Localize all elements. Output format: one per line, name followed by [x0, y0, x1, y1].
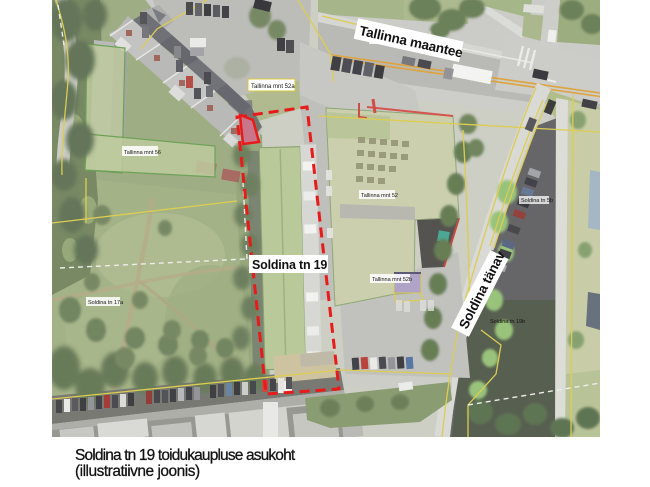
svg-text:Soldina tn 19: Soldina tn 19 [252, 258, 327, 272]
svg-text:Soldina tn 5b: Soldina tn 5b [521, 198, 553, 204]
svg-text:Tallinna mnt 52a: Tallinna mnt 52a [251, 84, 295, 90]
svg-text:Tallinna mnt 56: Tallinna mnt 56 [124, 150, 161, 156]
svg-text:Tallinna mnt 52b: Tallinna mnt 52b [372, 277, 412, 283]
svg-text:Tallinna mnt 52: Tallinna mnt 52 [361, 193, 398, 199]
svg-text:(illustratiivne joonis): (illustratiivne joonis) [75, 463, 200, 480]
svg-text:Soldina tn 19b: Soldina tn 19b [490, 319, 525, 325]
svg-text:Soldina tn 19 toidukaupluse as: Soldina tn 19 toidukaupluse asukoht [75, 447, 296, 464]
svg-text:Soldina tn 17a: Soldina tn 17a [88, 300, 124, 306]
